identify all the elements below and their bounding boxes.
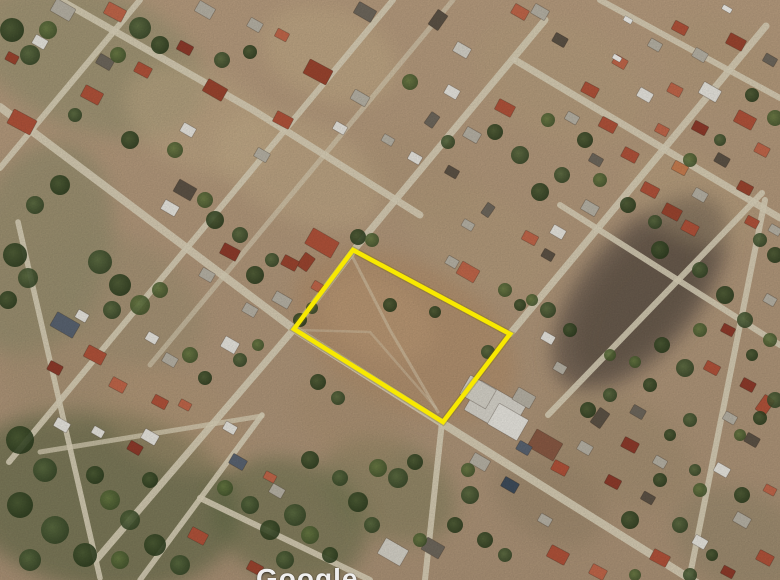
imagery-noise-texture xyxy=(0,0,780,580)
satellite-view[interactable]: Google xyxy=(0,0,780,580)
satellite-imagery[interactable] xyxy=(0,0,780,580)
